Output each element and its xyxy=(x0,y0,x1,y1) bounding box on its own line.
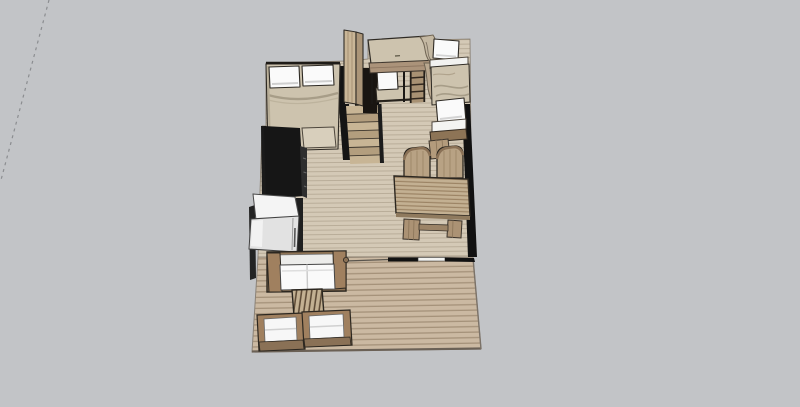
pillow-shade xyxy=(305,81,332,82)
column-front xyxy=(344,30,356,104)
cushion-seam xyxy=(282,270,333,271)
armchair-front-rail xyxy=(304,337,351,347)
stair-tread xyxy=(350,155,383,164)
outdoor-armchair-left[interactable] xyxy=(257,313,305,351)
column-side xyxy=(356,32,363,106)
bed-foot-bench xyxy=(302,127,336,148)
armchair-front-rail xyxy=(259,340,304,351)
fridge-highlight xyxy=(251,220,263,247)
table-top xyxy=(394,176,470,216)
indoor-sofa[interactable] xyxy=(267,251,349,292)
refrigerator[interactable] xyxy=(249,194,299,252)
table-leg-left xyxy=(403,219,420,240)
wardrobe-column[interactable] xyxy=(344,30,363,106)
bottom-wall-corner xyxy=(445,258,475,263)
fridge-handle xyxy=(295,228,296,247)
stair-tread xyxy=(349,147,382,156)
table-stretcher xyxy=(419,224,448,231)
window-sill xyxy=(418,258,445,262)
dining-table[interactable] xyxy=(394,176,470,240)
stair-tread xyxy=(348,130,381,139)
bottom-wall-segment xyxy=(388,258,418,262)
pillow-shade xyxy=(272,83,298,84)
table-leg-right xyxy=(447,220,462,238)
stair-tread xyxy=(347,122,380,131)
cushion-seam xyxy=(307,265,308,290)
stair-tread xyxy=(347,113,380,122)
stair-tread xyxy=(348,138,381,147)
outdoor-armchair-right[interactable] xyxy=(302,310,352,347)
sofa-armrest-left xyxy=(267,253,282,292)
model-viewport[interactable] xyxy=(0,0,800,407)
counter-top xyxy=(264,126,304,199)
sofa-knob xyxy=(343,257,348,262)
bunk-recess xyxy=(363,68,377,113)
